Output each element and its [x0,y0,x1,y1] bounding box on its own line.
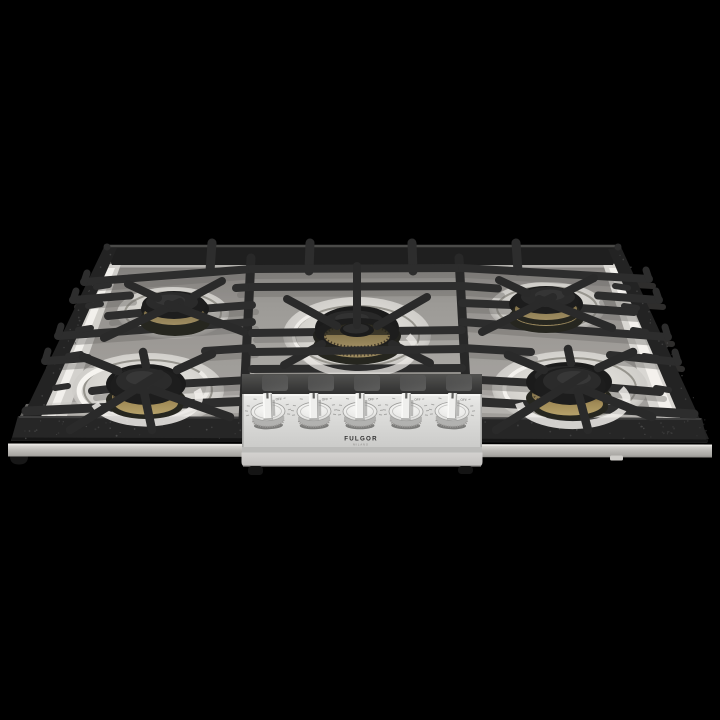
svg-text:OFF: OFF [275,397,282,401]
svg-text:OFF: OFF [460,398,467,402]
svg-text:OFF: OFF [368,398,374,402]
svg-text:OFF: OFF [414,398,420,402]
svg-text:FULGOR: FULGOR [344,436,378,443]
svg-text:MILANO: MILANO [353,443,369,447]
svg-text:OFF: OFF [322,397,328,401]
